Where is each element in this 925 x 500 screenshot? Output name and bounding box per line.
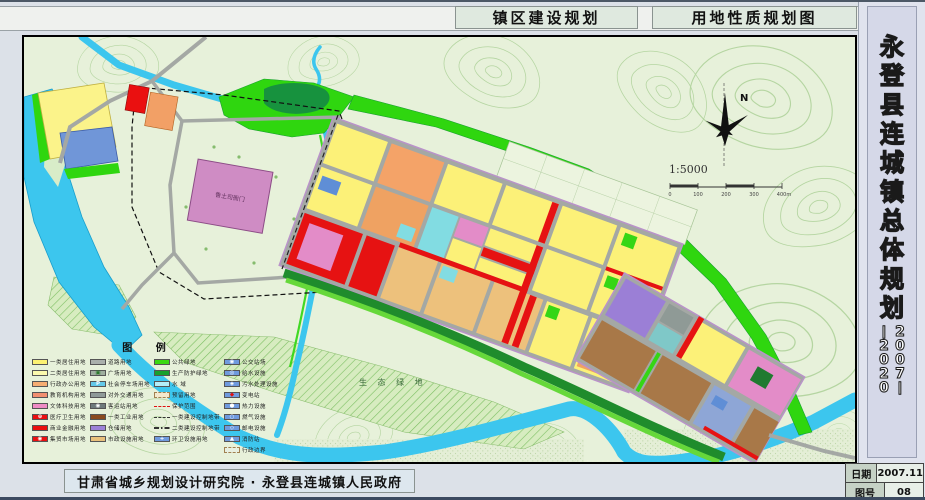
- plan-sheet: 镇区建设规划 用地性质规划图: [0, 0, 925, 500]
- svg-text:300: 300: [749, 192, 759, 198]
- legend-label: 道路用地: [108, 358, 132, 366]
- legend-col-1: 一类居住用地二类居住用地行政办公用地教育机构用地文体科技用地⊕医疗卫生用地商业金…: [32, 358, 86, 454]
- legend-item: ○燃气设施: [224, 413, 278, 421]
- legend-glyph: ◉: [38, 436, 43, 442]
- year-char: 0: [879, 381, 889, 395]
- title-char: 规: [880, 265, 904, 294]
- legend-item: ◆变电站: [224, 391, 278, 399]
- cluster-orange-block: [145, 92, 178, 130]
- legend-swatch: [32, 392, 48, 399]
- sidebar-panel: 永登县连城镇总体规划 2007——2020: [867, 6, 917, 458]
- legend-item: ◉公交站场: [224, 358, 278, 366]
- legend-swatch: [90, 425, 106, 432]
- legend-swatch: [32, 359, 48, 366]
- svg-text:100: 100: [693, 192, 703, 198]
- legend-item: +环卫设施用地: [154, 435, 220, 443]
- legend-item: 二类建设控制地带: [154, 424, 220, 432]
- year-char: 0: [879, 353, 889, 367]
- legend-glyph: ◎: [230, 370, 235, 376]
- legend-swatch: [90, 392, 106, 399]
- title-char: 连: [880, 120, 904, 149]
- legend-item: 市政设施用地: [90, 435, 150, 443]
- legend-label: 预留用地: [172, 391, 196, 399]
- title-char: 登: [880, 62, 904, 91]
- legend-swatch: [154, 381, 170, 388]
- legend-item: 一类建设控制地带: [154, 413, 220, 421]
- legend-label: 给水设施: [242, 369, 266, 377]
- title-tab-landuse-map: 用地性质规划图: [652, 6, 857, 29]
- legend-col-3: 公共绿地生产防护绿地水 域预留用地保护范围一类建设控制地带二类建设控制地带+环卫…: [154, 358, 220, 454]
- legend-swatch: [154, 427, 170, 429]
- title-char: 镇: [880, 178, 904, 207]
- legend-label: 邮电设施: [242, 424, 266, 432]
- date-value: 2007.11: [877, 464, 923, 482]
- legend-swatch: ▣: [90, 370, 106, 377]
- legend-item: ◎给水设施: [224, 369, 278, 377]
- legend-item: 二类居住用地: [32, 369, 86, 377]
- legend-item: ⊕医疗卫生用地: [32, 413, 86, 421]
- years-column-1: 2007—: [893, 325, 907, 395]
- legend-label: 二类居住用地: [50, 369, 86, 377]
- legend-swatch: +: [154, 436, 170, 443]
- legend-glyph: ◆: [230, 392, 234, 398]
- date-label: 日期: [846, 464, 877, 482]
- legend-swatch: ◈: [224, 381, 240, 388]
- legend-label: 二类建设控制地带: [172, 424, 220, 432]
- legend-label: 保护范围: [172, 402, 196, 410]
- legend-swatch: [224, 447, 240, 454]
- legend-swatch: [154, 370, 170, 377]
- legend-swatch: P: [90, 381, 106, 388]
- legend-col-2: 道路用地▣广场用地P社会停车场用地对外交通用地◉客运站用地一类工业用地仓储用地市…: [90, 358, 150, 454]
- legend-label: 社会停车场用地: [108, 380, 150, 388]
- legend-label: 一类工业用地: [108, 413, 144, 421]
- legend-label: 水 域: [172, 380, 186, 388]
- title-char: 总: [880, 207, 904, 236]
- legend-item: 生产防护绿地: [154, 369, 220, 377]
- legend-item: 教育机构用地: [32, 391, 86, 399]
- years-column-2: —2020: [877, 325, 891, 395]
- year-char: 2: [879, 367, 889, 381]
- scale-text: 1:5000: [669, 163, 708, 176]
- legend-item: 道路用地: [90, 358, 150, 366]
- legend-label: 热力设施: [242, 402, 266, 410]
- legend-glyph: ◉: [96, 403, 101, 409]
- legend-label: 医疗卫生用地: [50, 413, 86, 421]
- legend-label: 文体科技用地: [50, 402, 86, 410]
- legend-label: 消防站: [242, 435, 260, 443]
- year-char: —: [877, 325, 891, 339]
- legend-label: 教育机构用地: [50, 391, 86, 399]
- legend-item: 仓储用地: [90, 424, 150, 432]
- legend-item: 对外交通用地: [90, 391, 150, 399]
- legend-swatch: [32, 370, 48, 377]
- cluster-red-block: [125, 84, 149, 113]
- legend-glyph: P: [96, 381, 100, 387]
- legend-glyph: ▲: [230, 436, 234, 442]
- legend-swatch: [90, 414, 106, 421]
- legend-swatch: [32, 425, 48, 432]
- map-frame: 鲁土司衙门: [22, 35, 857, 464]
- legend-item: 公共绿地: [154, 358, 220, 366]
- sheet-years-vertical: 2007——2020: [868, 325, 916, 395]
- legend-item: 行政边界: [224, 446, 278, 454]
- legend-label: 公共绿地: [172, 358, 196, 366]
- sidebar: 永登县连城镇总体规划 2007——2020: [858, 2, 925, 500]
- legend-label: 变电站: [242, 391, 260, 399]
- legend-swatch: [32, 381, 48, 388]
- year-char: 2: [895, 325, 905, 339]
- year-char: 2: [879, 339, 889, 353]
- north-label: N: [740, 93, 748, 104]
- legend-columns: 一类居住用地二类居住用地行政办公用地教育机构用地文体科技用地⊕医疗卫生用地商业金…: [32, 358, 266, 454]
- svg-text:400m: 400m: [777, 192, 792, 198]
- legend-label: 对外交通用地: [108, 391, 144, 399]
- legend-swatch: ◉: [224, 359, 240, 366]
- legend-item: ▣广场用地: [90, 369, 150, 377]
- legend-item: ◇邮电设施: [224, 424, 278, 432]
- legend-label: 行政办公用地: [50, 380, 86, 388]
- legend-swatch: ◉: [90, 403, 106, 410]
- legend-swatch: [154, 417, 170, 418]
- eco-green-label: 生 态 绿 地: [359, 377, 427, 387]
- legend-label: 客运站用地: [108, 402, 138, 410]
- forest-patch: [264, 83, 330, 114]
- legend-label: 广场用地: [108, 369, 132, 377]
- legend-swatch: ◇: [224, 425, 240, 432]
- title-char: 体: [880, 236, 904, 265]
- legend-item: ▲消防站: [224, 435, 278, 443]
- year-char: 0: [895, 339, 905, 353]
- legend-swatch: [90, 359, 106, 366]
- legend-glyph: ◈: [230, 381, 234, 387]
- year-char: —: [893, 381, 907, 395]
- credit-tab: 甘肃省城乡规划设计研究院 · 永登县连城镇人民政府: [64, 469, 415, 493]
- legend-item: ◉集贸市场用地: [32, 435, 86, 443]
- sheet-title-vertical: 永登县连城镇总体规划: [868, 33, 916, 323]
- svg-text:0: 0: [668, 192, 671, 198]
- info-row-date: 日期 2007.11: [846, 464, 923, 482]
- legend-item: 一类工业用地: [90, 413, 150, 421]
- sheet-number-value: 08: [885, 483, 923, 500]
- legend-label: 公交站场: [242, 358, 266, 366]
- legend-item: 行政办公用地: [32, 380, 86, 388]
- legend-swatch: ▲: [224, 436, 240, 443]
- legend: 图 例 一类居住用地二类居住用地行政办公用地教育机构用地文体科技用地⊕医疗卫生用…: [32, 339, 266, 454]
- legend-glyph: ◇: [230, 425, 234, 431]
- year-char: 0: [895, 353, 905, 367]
- legend-label: 污水处理设施: [242, 380, 278, 388]
- legend-swatch: ◉: [32, 436, 48, 443]
- legend-label: 一类建设控制地带: [172, 413, 220, 421]
- year-char: 7: [895, 367, 905, 381]
- legend-label: 商业金融用地: [50, 424, 86, 432]
- legend-label: 燃气设施: [242, 413, 266, 421]
- legend-glyph: ▣: [95, 370, 100, 376]
- legend-glyph: ○: [230, 414, 235, 420]
- legend-label: 集贸市场用地: [50, 435, 86, 443]
- legend-swatch: [154, 406, 170, 407]
- legend-label: 市政设施用地: [108, 435, 144, 443]
- legend-swatch: ○: [224, 414, 240, 421]
- legend-item: ●热力设施: [224, 402, 278, 410]
- title-char: 划: [880, 294, 904, 323]
- legend-item: 水 域: [154, 380, 220, 388]
- legend-label: 环卫设施用地: [172, 435, 208, 443]
- legend-item: ◉客运站用地: [90, 402, 150, 410]
- legend-col-4: ◉公交站场◎给水设施◈污水处理设施◆变电站●热力设施○燃气设施◇邮电设施▲消防站…: [224, 358, 278, 454]
- legend-label: 一类居住用地: [50, 358, 86, 366]
- legend-item: ◈污水处理设施: [224, 380, 278, 388]
- legend-swatch: ◎: [224, 370, 240, 377]
- legend-item: 文体科技用地: [32, 402, 86, 410]
- legend-swatch: ⊕: [32, 414, 48, 421]
- legend-label: 生产防护绿地: [172, 369, 208, 377]
- legend-swatch: ◆: [224, 392, 240, 399]
- legend-swatch: [90, 436, 106, 443]
- legend-glyph: +: [160, 436, 165, 442]
- legend-glyph: ●: [230, 403, 235, 409]
- legend-title: 图 例: [32, 339, 266, 354]
- title-char: 城: [880, 149, 904, 178]
- title-tab-construction-plan: 镇区建设规划: [455, 6, 638, 29]
- svg-text:200: 200: [721, 192, 731, 198]
- legend-item: P社会停车场用地: [90, 380, 150, 388]
- legend-label: 仓储用地: [108, 424, 132, 432]
- legend-swatch: ●: [224, 403, 240, 410]
- legend-swatch: [154, 359, 170, 366]
- info-table: 日期 2007.11 图号 08: [845, 463, 924, 500]
- legend-glyph: ◉: [230, 359, 235, 365]
- info-row-sheet: 图号 08: [846, 482, 923, 500]
- title-char: 永: [880, 33, 904, 62]
- legend-label: 行政边界: [242, 446, 266, 454]
- legend-swatch: [32, 403, 48, 410]
- title-char: 县: [880, 91, 904, 120]
- legend-item: 一类居住用地: [32, 358, 86, 366]
- legend-item: 保护范围: [154, 402, 220, 410]
- legend-item: 预留用地: [154, 391, 220, 399]
- legend-item: 商业金融用地: [32, 424, 86, 432]
- legend-swatch: [154, 392, 170, 399]
- legend-glyph: ⊕: [38, 414, 43, 420]
- sheet-number-label: 图号: [846, 483, 885, 500]
